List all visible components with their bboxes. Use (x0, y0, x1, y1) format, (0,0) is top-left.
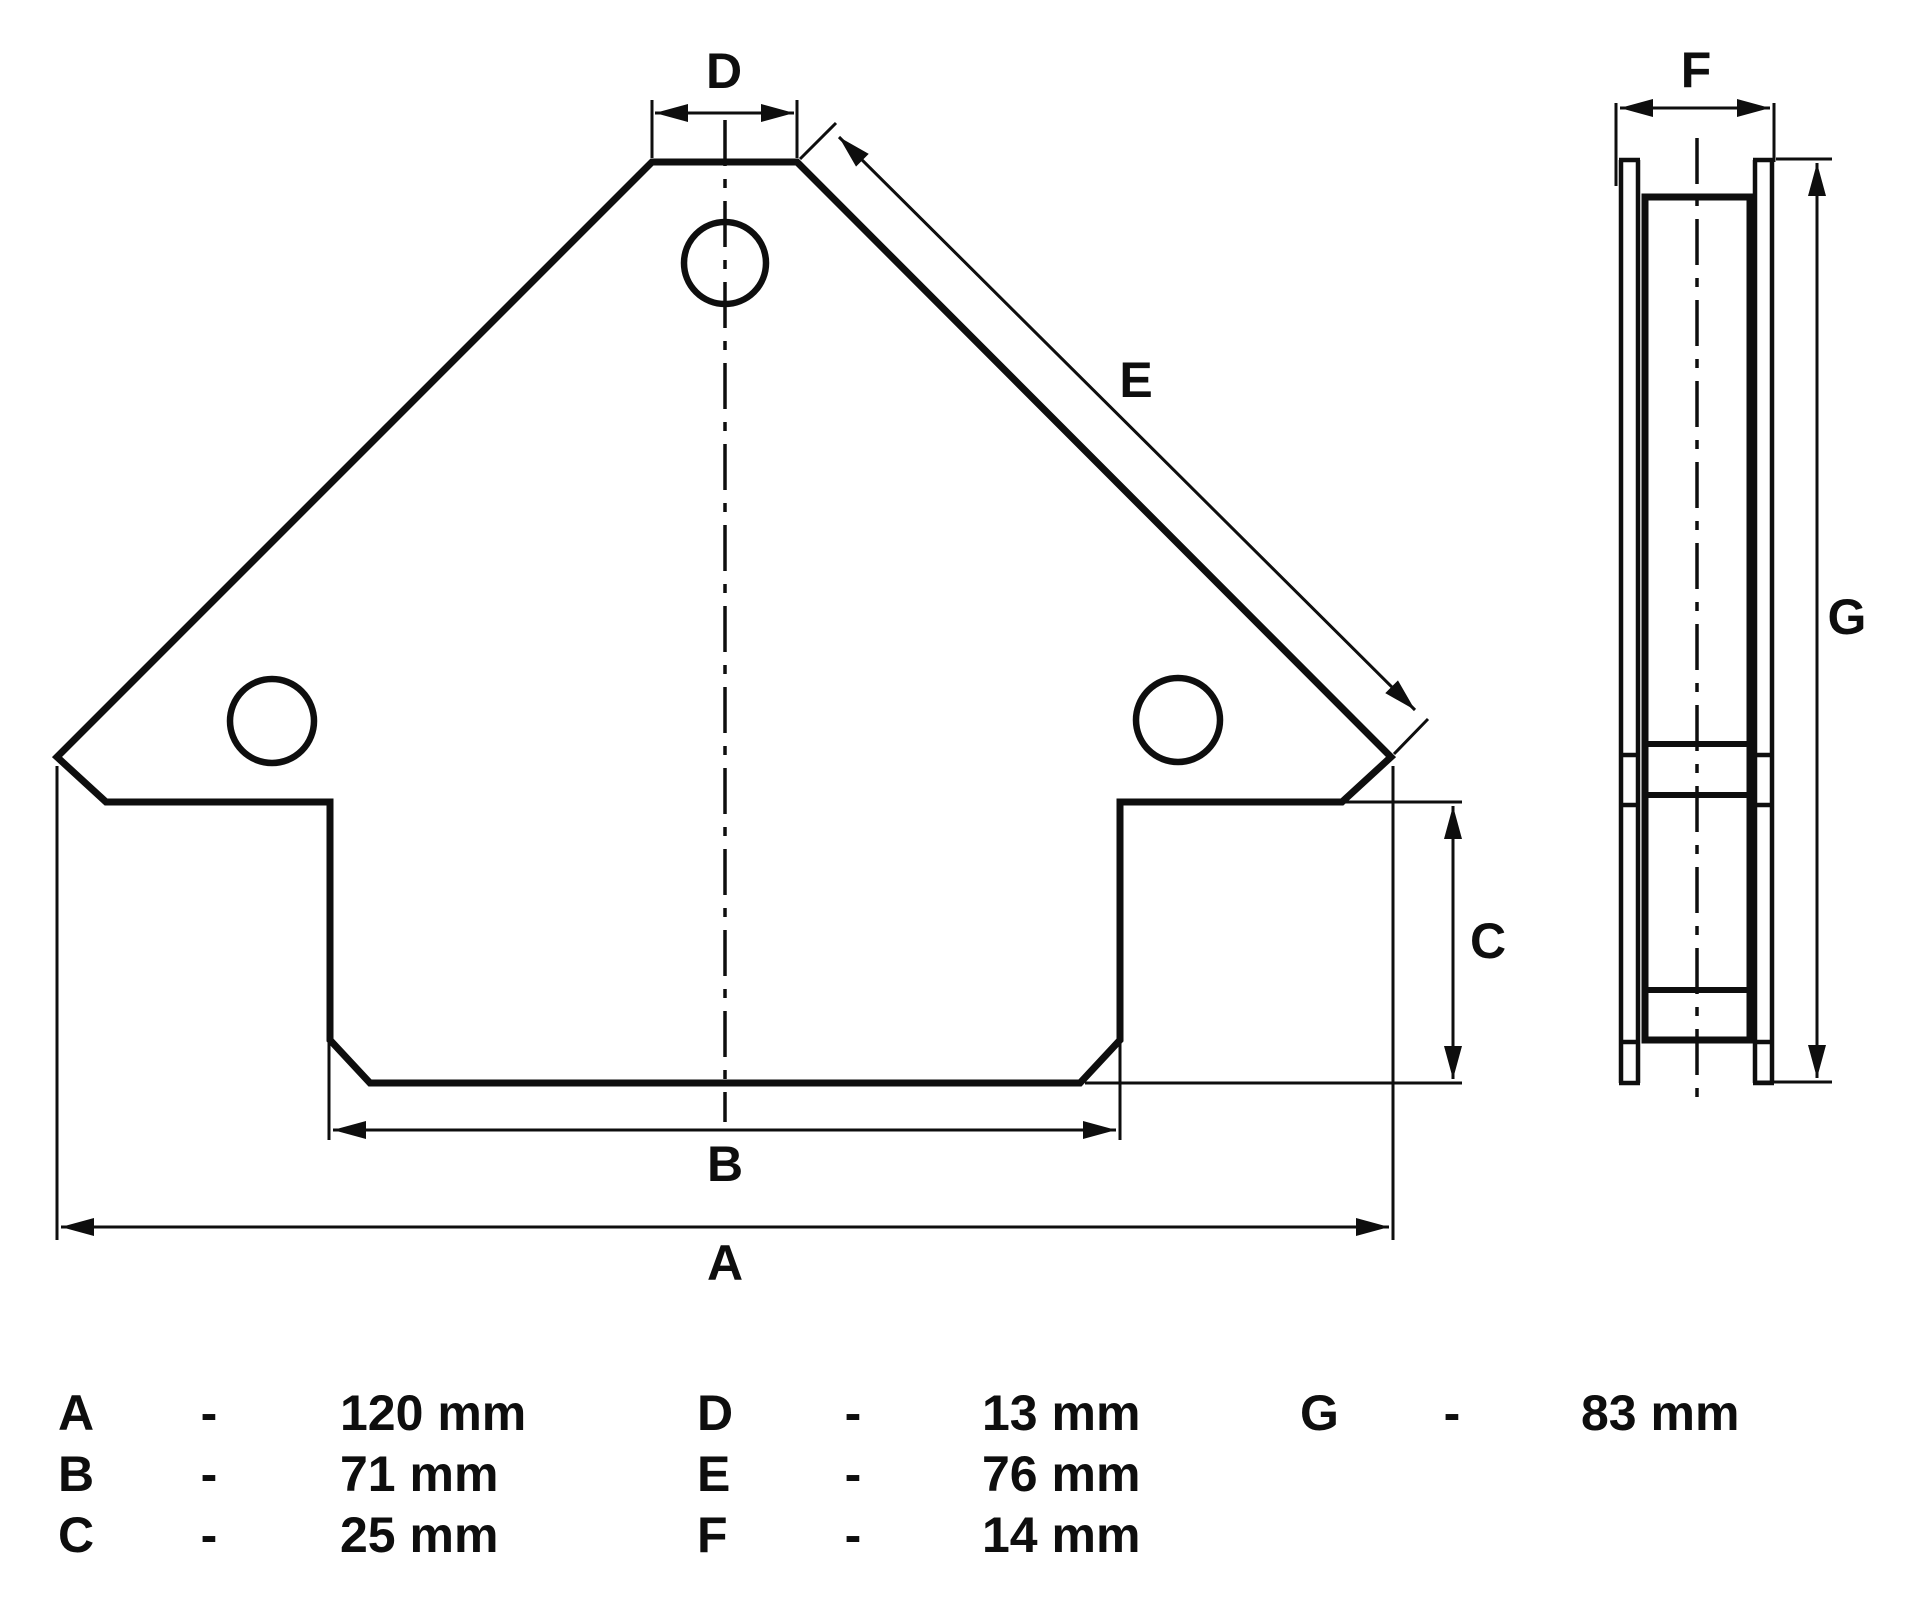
legend-value: 13 mm (982, 1385, 1140, 1441)
legend-row-c: C - 25 mm (58, 1507, 498, 1563)
legend-row-g: G - 83 mm (1300, 1385, 1739, 1441)
legend-separator: - (845, 1507, 862, 1563)
legend-row-f: F - 14 mm (697, 1507, 1140, 1563)
legend-value: 25 mm (340, 1507, 498, 1563)
hole-left (230, 679, 314, 763)
dim-e-ext-top (800, 123, 836, 159)
dim-c-label: C (1470, 913, 1506, 969)
dim-a-label: A (707, 1235, 743, 1291)
legend-letter: E (697, 1446, 730, 1502)
legend-row-b: B - 71 mm (58, 1446, 498, 1502)
dim-c: C (1085, 802, 1506, 1083)
dim-b-label: B (707, 1136, 743, 1192)
legend-value: 71 mm (340, 1446, 498, 1502)
legend-letter: A (58, 1385, 94, 1441)
legend-letter: C (58, 1507, 94, 1563)
legend-row-e: E - 76 mm (697, 1446, 1140, 1502)
legend-separator: - (201, 1507, 218, 1563)
legend: A - 120 mm B - 71 mm C - 25 mm D - 13 mm… (58, 1385, 1739, 1563)
legend-letter: B (58, 1446, 94, 1502)
drawing-page: D E C B A (0, 0, 1920, 1612)
front-view (57, 120, 1391, 1122)
side-view (1619, 138, 1774, 1098)
legend-letter: G (1300, 1385, 1339, 1441)
legend-value: 76 mm (982, 1446, 1140, 1502)
legend-value: 120 mm (340, 1385, 526, 1441)
legend-separator: - (845, 1446, 862, 1502)
legend-separator: - (201, 1385, 218, 1441)
dim-e: E (800, 123, 1428, 754)
dim-f-label: F (1681, 42, 1712, 98)
dim-d-label: D (706, 43, 742, 99)
diagram-canvas: D E C B A (0, 0, 1920, 1612)
legend-letter: F (697, 1507, 728, 1563)
dim-e-arrow (839, 137, 1415, 710)
legend-separator: - (845, 1385, 862, 1441)
dim-g-label: G (1828, 589, 1867, 645)
hole-right (1136, 678, 1220, 762)
legend-value: 83 mm (1581, 1385, 1739, 1441)
dim-e-label: E (1119, 352, 1152, 408)
legend-row-a: A - 120 mm (58, 1385, 526, 1441)
legend-letter: D (697, 1385, 733, 1441)
legend-separator: - (201, 1446, 218, 1502)
dim-e-ext-bottom (1394, 719, 1428, 754)
legend-separator: - (1444, 1385, 1461, 1441)
legend-row-d: D - 13 mm (697, 1385, 1140, 1441)
legend-value: 14 mm (982, 1507, 1140, 1563)
